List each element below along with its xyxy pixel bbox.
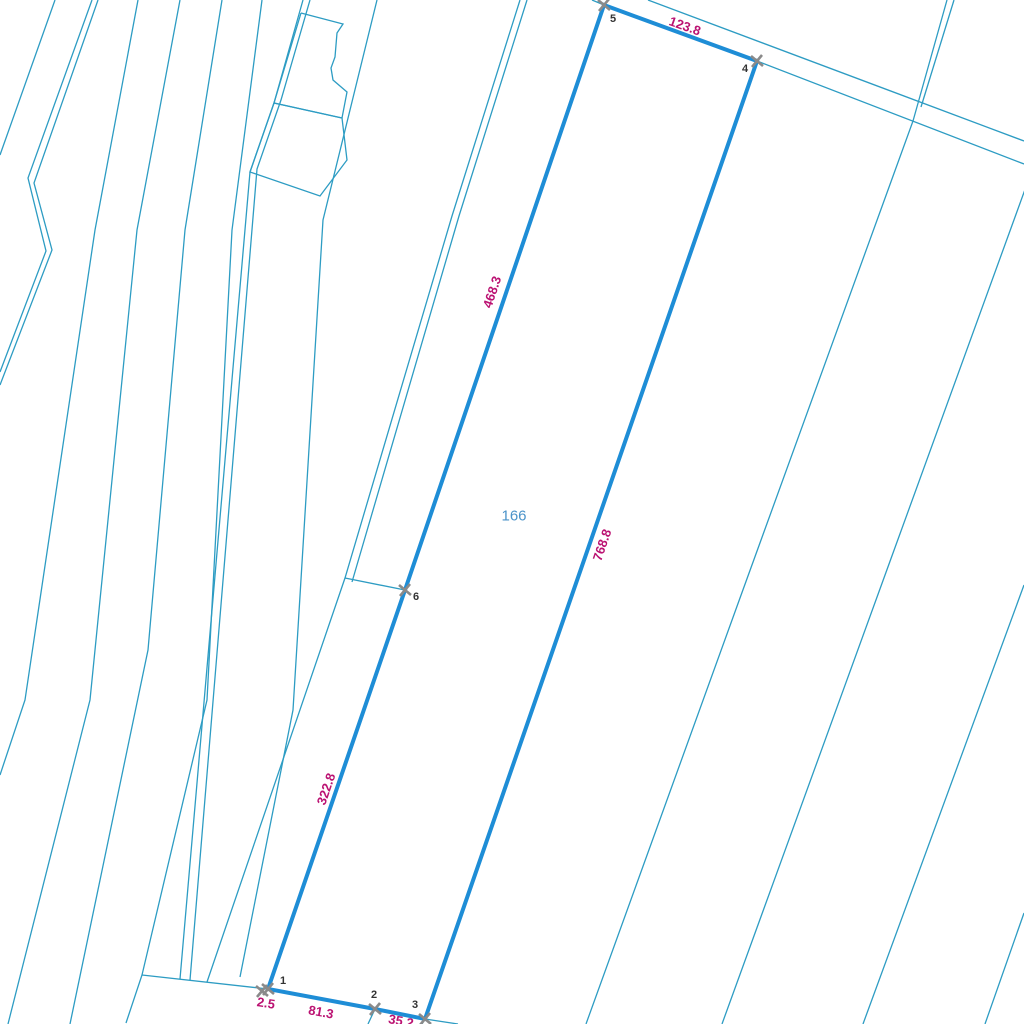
vertex-label-4: 4	[742, 63, 749, 75]
vertex-label-3: 3	[412, 999, 418, 1011]
crossing-pair-b	[921, 0, 954, 107]
edge-length-label-2-5: 2.5	[256, 994, 276, 1012]
vertex-label-2: 2	[371, 989, 377, 1001]
edge-length-label-35-2: 35.2	[387, 1011, 415, 1024]
small-parcel-upper	[274, 13, 347, 118]
vertex-label-6: 6	[413, 591, 419, 603]
crossing-pair-a	[913, 0, 947, 121]
strip-line-2b	[0, 0, 98, 385]
strip-line-1	[0, 0, 55, 155]
vertex-label-5: 5	[610, 13, 616, 25]
spur-to-vertex-6	[345, 578, 405, 590]
vertex-label-1: 1	[280, 975, 286, 987]
road-upper-edge	[648, 0, 1024, 141]
map-canvas[interactable]: 123456123.8768.8468.3322.881.335.22.5166	[0, 0, 1024, 1024]
map-viewport[interactable]: 123456123.8768.8468.3322.881.335.22.5166	[0, 0, 1024, 1024]
strip-line-6	[126, 0, 262, 1023]
strip-line-7b	[190, 0, 310, 980]
strip-line-3	[0, 0, 138, 775]
strip-line-10	[586, 121, 913, 1024]
strip-line-8	[240, 0, 377, 977]
strip-line-13	[985, 913, 1024, 1024]
strip-line-4	[8, 0, 180, 1024]
edge-length-label-81-3: 81.3	[307, 1002, 335, 1021]
strip-line-9a	[207, 0, 520, 982]
strip-line-12	[863, 585, 1024, 1024]
strip-line-11	[722, 173, 1024, 1024]
parcel-number-label: 166	[501, 508, 526, 525]
